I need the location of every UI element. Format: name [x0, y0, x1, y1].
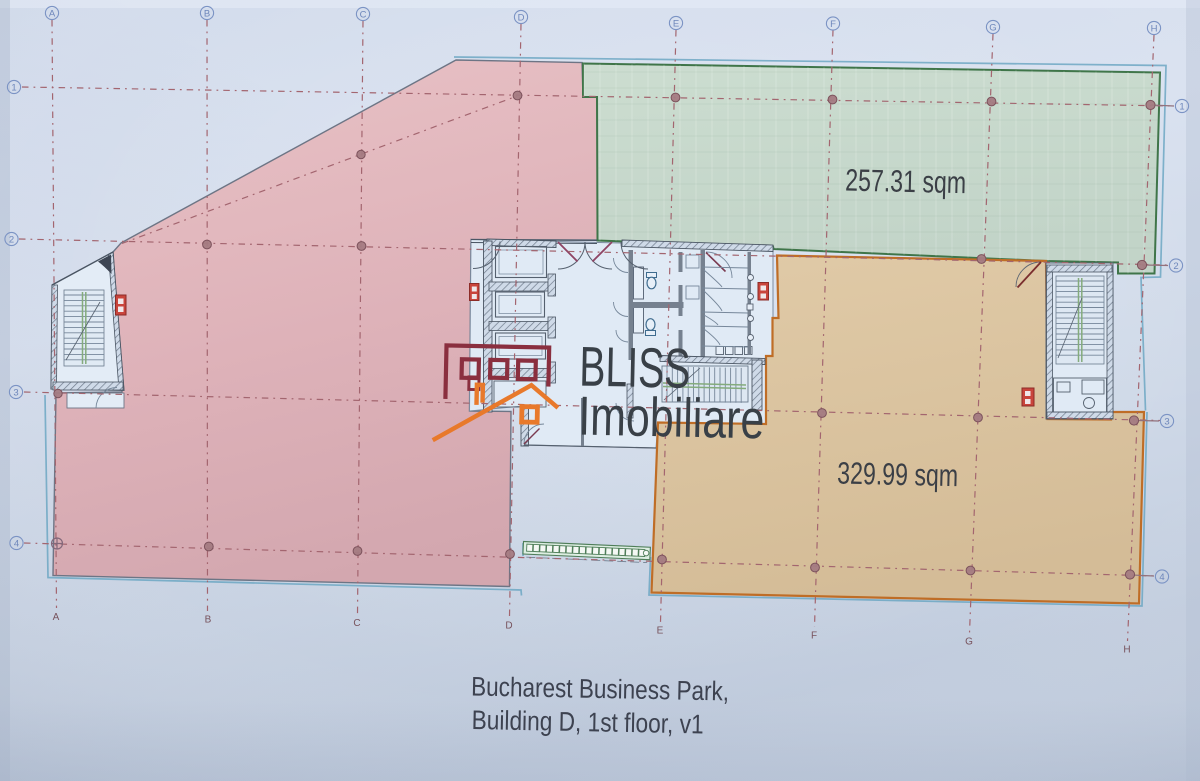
- svg-text:329.99 sqm: 329.99 sqm: [837, 456, 959, 494]
- svg-text:H: H: [1123, 645, 1130, 656]
- svg-text:4: 4: [14, 539, 19, 550]
- svg-text:1: 1: [1179, 102, 1184, 113]
- svg-text:257.31 sqm: 257.31 sqm: [845, 163, 967, 201]
- svg-text:3: 3: [1164, 417, 1169, 428]
- svg-text:G: G: [965, 637, 973, 648]
- svg-text:Building D, 1st floor, v1: Building D, 1st floor, v1: [471, 705, 704, 739]
- svg-text:Imobiliare: Imobiliare: [578, 385, 765, 451]
- svg-text:3: 3: [13, 388, 18, 399]
- svg-text:F: F: [811, 631, 817, 642]
- svg-text:B: B: [204, 9, 210, 20]
- svg-text:G: G: [989, 23, 996, 34]
- svg-text:C: C: [353, 618, 360, 629]
- svg-text:D: D: [505, 621, 512, 632]
- svg-text:2: 2: [9, 235, 14, 246]
- svg-text:1: 1: [11, 83, 16, 94]
- svg-text:F: F: [830, 19, 836, 30]
- svg-text:Bucharest Business Park,: Bucharest Business Park,: [471, 672, 730, 707]
- svg-text:E: E: [657, 626, 664, 637]
- svg-text:A: A: [49, 9, 56, 20]
- svg-text:E: E: [673, 19, 679, 30]
- svg-text:B: B: [205, 615, 212, 626]
- svg-text:A: A: [53, 612, 60, 623]
- svg-text:H: H: [1151, 24, 1158, 35]
- svg-text:D: D: [518, 13, 525, 24]
- svg-text:2: 2: [1173, 261, 1178, 272]
- svg-text:C: C: [360, 10, 367, 21]
- svg-text:4: 4: [1159, 572, 1164, 583]
